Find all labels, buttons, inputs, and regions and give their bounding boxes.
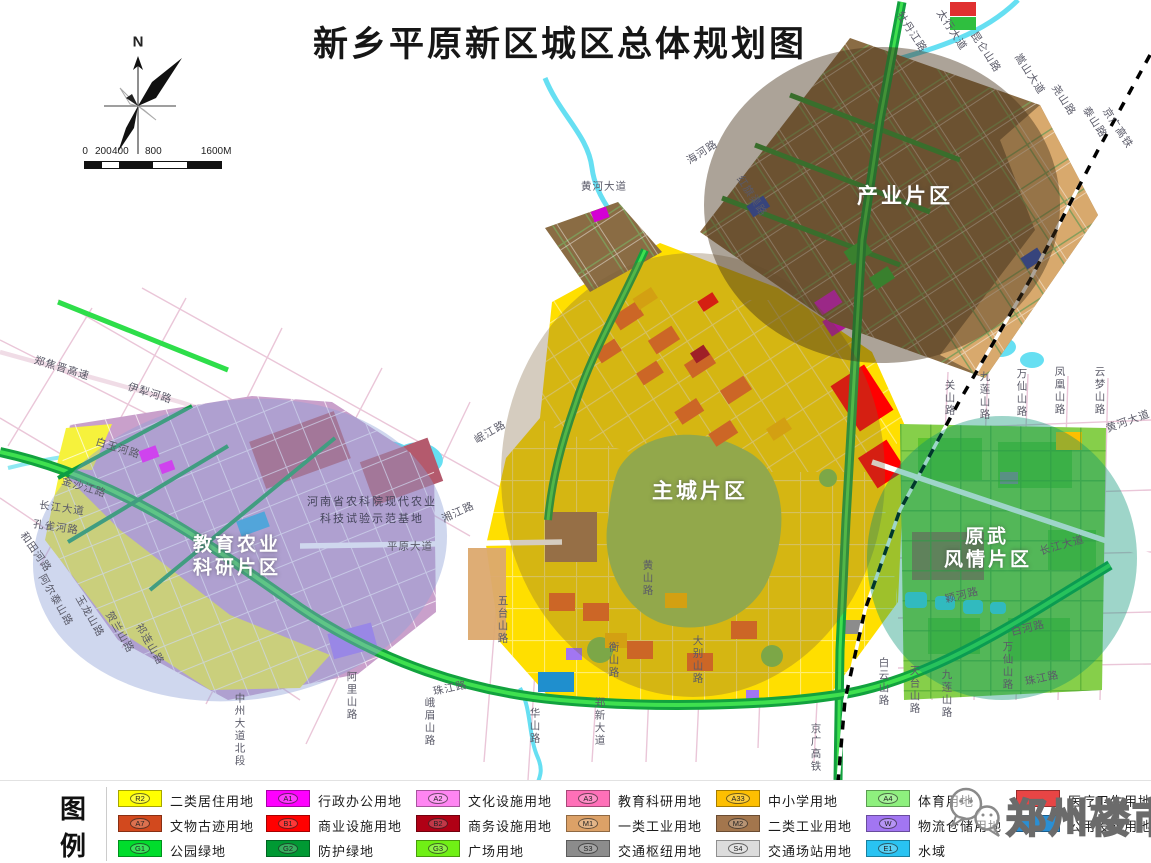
scale-bar-segment	[187, 162, 221, 168]
compass-rose-icon	[96, 36, 191, 161]
legend-code: B2	[428, 818, 447, 829]
legend-swatch: A2	[416, 790, 460, 807]
legend-label: 商务设施用地	[468, 816, 552, 835]
road-label: 五台山路	[496, 595, 511, 645]
road-label: 天台山路	[908, 665, 923, 715]
road-label: 阿里山路	[345, 671, 360, 721]
legend-label: 行政办公用地	[318, 791, 402, 810]
legend-code: W	[879, 818, 896, 829]
legend-code: A33	[726, 793, 749, 804]
legend-label: 二类居住用地	[170, 791, 254, 810]
legend-label: 水域	[918, 841, 946, 860]
road-label: 大别山路	[691, 635, 706, 685]
district-label: 风情片区	[944, 545, 1032, 572]
scale-tick: 0	[82, 146, 88, 157]
legend-label: 教育科研用地	[618, 791, 702, 810]
road-label: 凤凰山路	[1053, 366, 1068, 416]
legend-swatch: M1	[566, 815, 610, 832]
road-label: 关山路	[943, 379, 958, 417]
road-label: 云梦山路	[1093, 366, 1108, 416]
legend-label: 广场用地	[468, 841, 524, 860]
legend-title-char: 图	[60, 789, 86, 826]
legend-swatch: A4	[866, 790, 910, 807]
legend-swatch: G1	[118, 840, 162, 857]
watermark-text: 郑州楼市	[1006, 786, 1151, 844]
legend-label: 一类工业用地	[618, 816, 702, 835]
road-label: 黄山路	[641, 559, 656, 597]
scale-bar: 02004008001600M	[84, 146, 234, 172]
legend-swatch: M2	[716, 815, 760, 832]
road-label: 黄河大道	[581, 179, 627, 194]
legend-swatch: R2	[118, 790, 162, 807]
scale-bar-strip	[84, 161, 222, 169]
legend-label: 二类工业用地	[768, 816, 852, 835]
scale-tick: 1600M	[201, 146, 232, 157]
road-label: 万仙山路	[1001, 641, 1016, 691]
legend-code: E1	[878, 843, 897, 854]
road-label: 九莲山路	[978, 371, 993, 421]
legend-label: 商业设施用地	[318, 816, 402, 835]
legend-swatch: G3	[416, 840, 460, 857]
road-label: 华山路	[528, 707, 543, 745]
scale-bar-segment	[153, 162, 187, 168]
legend-title: 图例	[40, 787, 107, 861]
scale-tick: 800	[145, 146, 162, 157]
legend-label: 公园绿地	[170, 841, 226, 860]
site-caption: 河南省农科院现代农业	[307, 493, 437, 509]
site-caption: 科技试验示范基地	[320, 510, 424, 526]
legend-label: 文化设施用地	[468, 791, 552, 810]
road-label: 万仙山路	[1015, 368, 1030, 418]
scale-bar-segment	[102, 162, 119, 168]
legend-label: 文物古迹用地	[170, 816, 254, 835]
road-label: 衡山路	[607, 641, 622, 679]
page-title: 新乡平原新区城区总体规划图	[313, 16, 807, 67]
legend-code: S3	[578, 843, 597, 854]
legend-label: 交通场站用地	[768, 841, 852, 860]
scale-tick: 400	[112, 146, 129, 157]
legend-swatch: A7	[118, 815, 162, 832]
legend-swatch: E1	[866, 840, 910, 857]
legend-label: 中小学用地	[768, 791, 838, 810]
road-label: 郑新大道	[593, 697, 608, 747]
legend-code: S4	[728, 843, 747, 854]
legend-swatch: A33	[716, 790, 760, 807]
road-label: 京广高铁	[809, 723, 824, 773]
legend-code: A7	[130, 818, 149, 829]
compass-north-label: N	[133, 34, 144, 51]
legend-swatch: S3	[566, 840, 610, 857]
road-label: 平原大道	[387, 539, 433, 554]
legend-code: A2	[428, 793, 447, 804]
legend-label: 防护绿地	[318, 841, 374, 860]
legend-code: A4	[878, 793, 897, 804]
legend-title-char: 例	[60, 826, 86, 863]
planning-map-page: 新乡平原新区城区总体规划图 N 02004008001600M 产业片区主城片区…	[0, 0, 1151, 863]
legend-swatch: S4	[716, 840, 760, 857]
legend-code: B1	[278, 818, 297, 829]
legend-swatch: B2	[416, 815, 460, 832]
district-label: 产业片区	[857, 180, 953, 210]
scale-bar-segment	[85, 162, 102, 168]
scale-tick: 200	[95, 146, 112, 157]
road-label: 峨眉山路	[423, 697, 438, 747]
legend-code: G1	[130, 843, 150, 854]
legend-swatch: A1	[266, 790, 310, 807]
district-label: 科研片区	[193, 553, 281, 580]
road-label: 白云山路	[877, 657, 892, 707]
legend-swatch: G2	[266, 840, 310, 857]
scale-bar-segment	[119, 162, 153, 168]
legend-swatch: W	[866, 815, 910, 832]
legend-code: G2	[278, 843, 298, 854]
legend-code: M1	[578, 818, 598, 829]
legend-code: R2	[130, 793, 150, 804]
legend-label: 交通枢纽用地	[618, 841, 702, 860]
district-label: 主城片区	[652, 475, 748, 505]
road-label: 中州大道北段	[233, 693, 248, 768]
legend-code: A1	[278, 793, 297, 804]
legend-code: G3	[428, 843, 448, 854]
watermark: 郑州楼市	[944, 782, 1149, 854]
wechat-icon	[944, 784, 1006, 842]
legend-swatch: A3	[566, 790, 610, 807]
legend-code: A3	[578, 793, 597, 804]
legend-swatch: B1	[266, 815, 310, 832]
road-label: 九莲山路	[940, 669, 955, 719]
legend-code: M2	[728, 818, 748, 829]
